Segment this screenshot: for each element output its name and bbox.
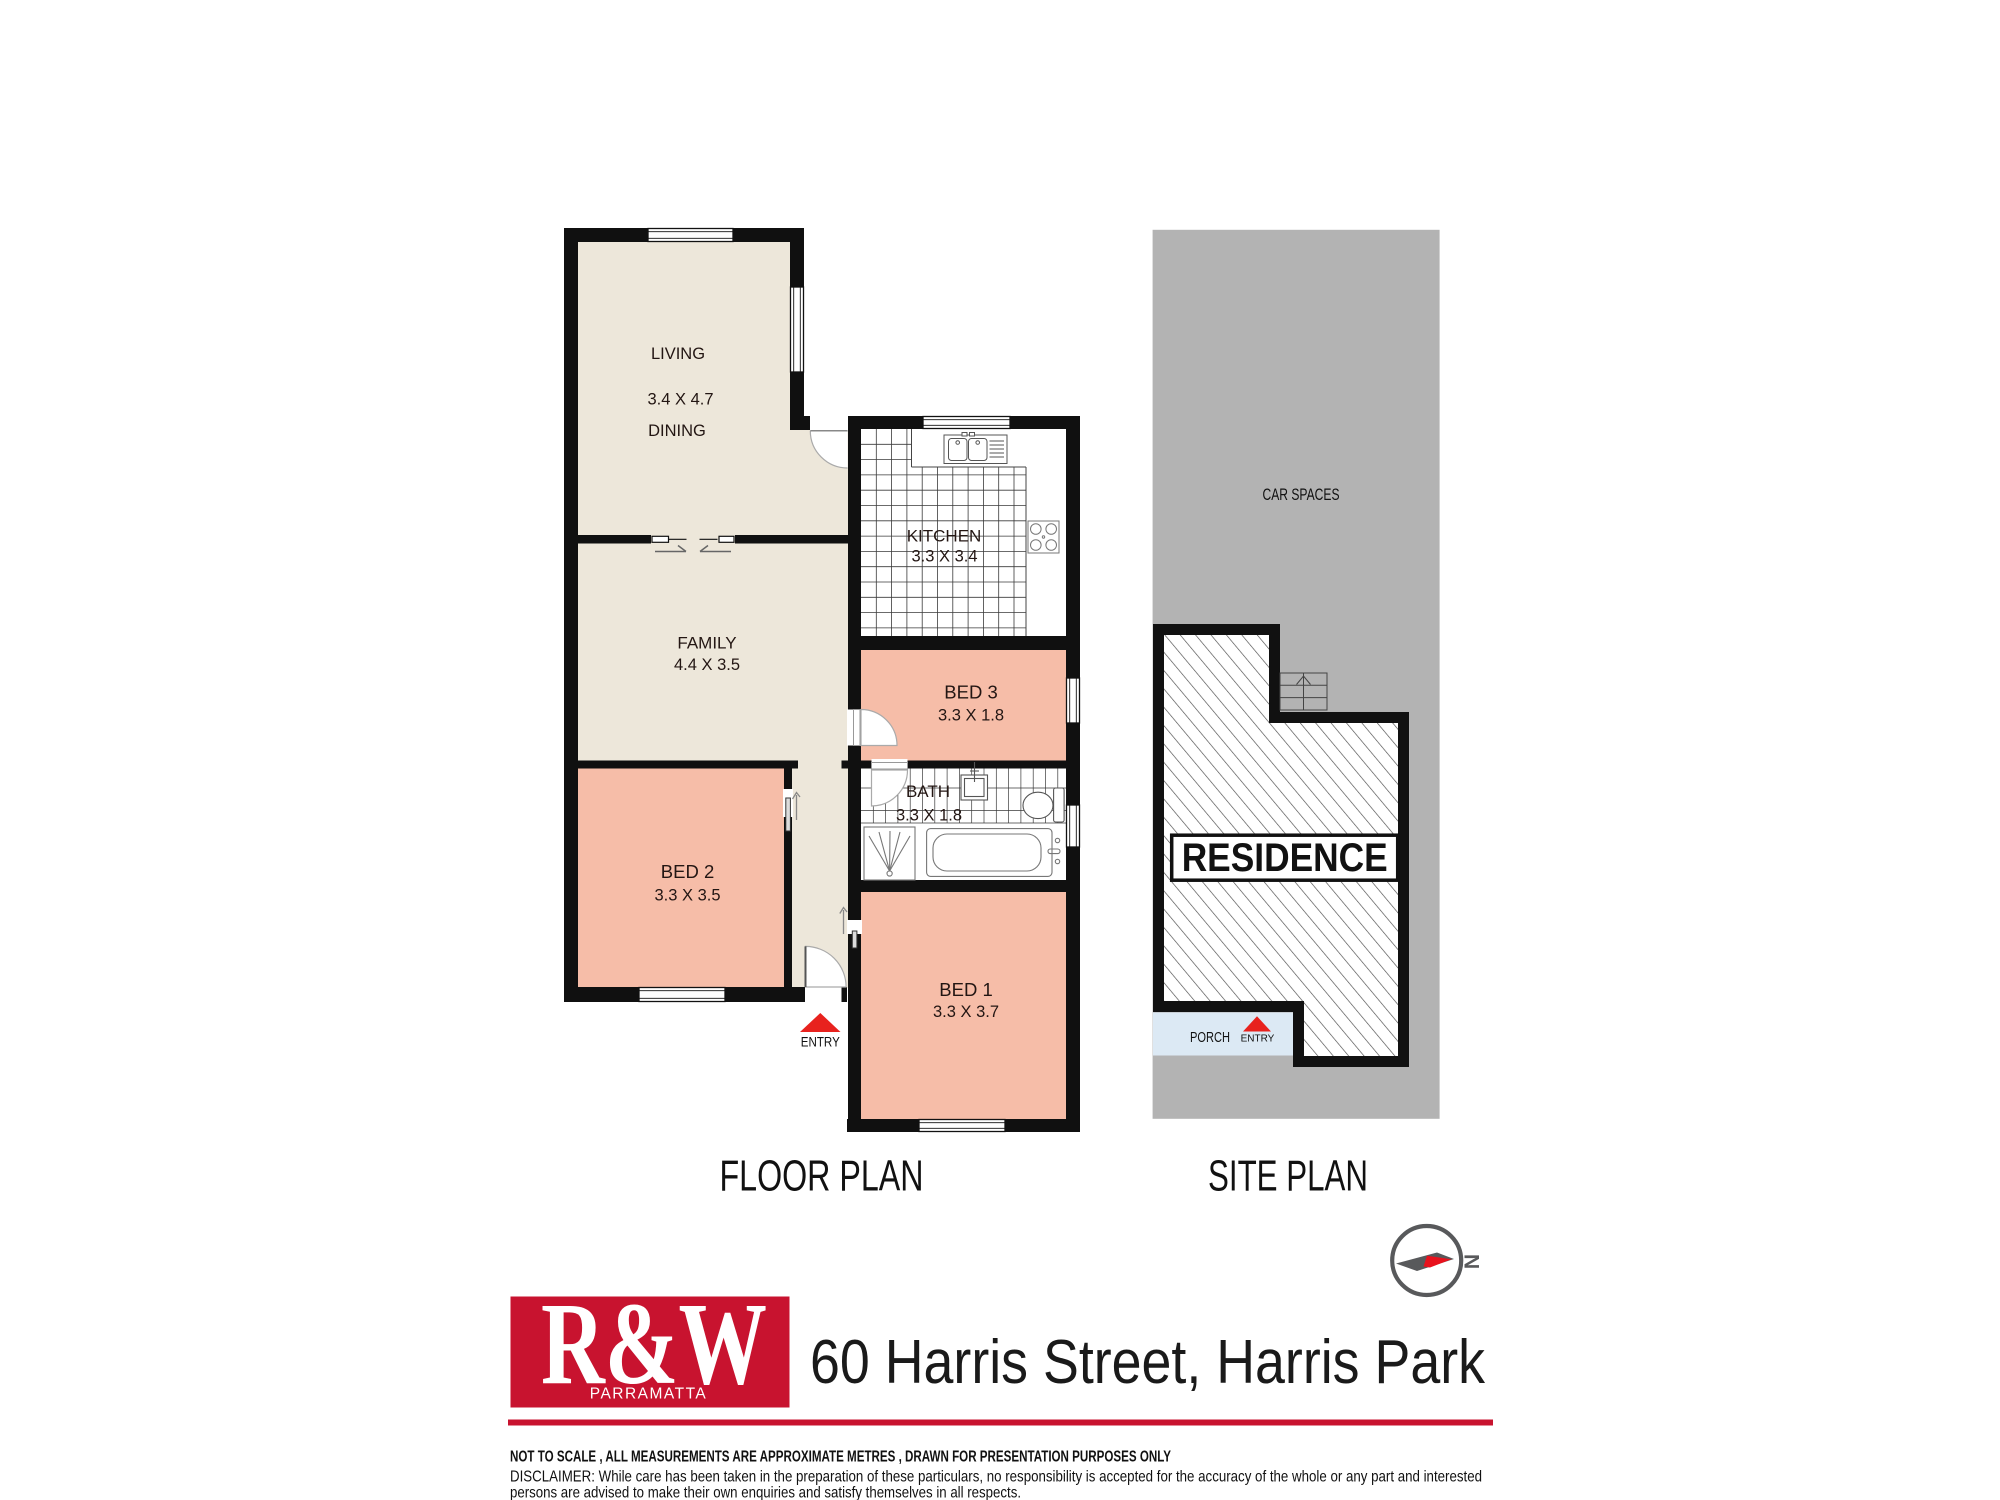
- svg-text:DISCLAIMER: While care has be: DISCLAIMER: While care has been taken in…: [510, 1469, 1482, 1486]
- svg-text:ENTRY: ENTRY: [801, 1034, 841, 1050]
- svg-text:DINING: DINING: [648, 422, 706, 440]
- svg-text:3.4 X 4.7: 3.4 X 4.7: [647, 391, 713, 409]
- svg-text:3.3 X 1.8: 3.3 X 1.8: [896, 807, 962, 825]
- svg-text:BATH: BATH: [906, 782, 950, 801]
- svg-text:persons are advised to make th: persons are advised to make their own en…: [510, 1485, 1021, 1500]
- svg-text:3.3 X 1.8: 3.3 X 1.8: [938, 707, 1004, 725]
- svg-text:KITCHEN: KITCHEN: [907, 527, 982, 546]
- svg-text:SITE PLAN: SITE PLAN: [1208, 1152, 1368, 1201]
- svg-text:PARRAMATTA: PARRAMATTA: [590, 1386, 707, 1403]
- svg-text:LIVING: LIVING: [651, 345, 705, 363]
- svg-text:3.3 X 3.4: 3.3 X 3.4: [911, 548, 977, 566]
- svg-text:FAMILY: FAMILY: [677, 634, 736, 653]
- svg-text:3.3 X 3.7: 3.3 X 3.7: [933, 1003, 999, 1021]
- svg-text:60 Harris Street, Harris Park: 60 Harris Street, Harris Park: [810, 1328, 1486, 1397]
- svg-text:ENTRY: ENTRY: [1241, 1034, 1275, 1045]
- svg-text:RESIDENCE: RESIDENCE: [1182, 836, 1388, 880]
- svg-text:N: N: [1460, 1254, 1483, 1269]
- svg-text:NOT TO SCALE , ALL MEASUREMENT: NOT TO SCALE , ALL MEASUREMENTS ARE APPR…: [510, 1449, 1171, 1466]
- svg-text:4.4 X 3.5: 4.4 X 3.5: [674, 656, 740, 674]
- svg-text:FLOOR PLAN: FLOOR PLAN: [720, 1152, 924, 1201]
- svg-text:BED 2: BED 2: [661, 861, 714, 882]
- svg-text:3.3 X 3.5: 3.3 X 3.5: [654, 887, 720, 905]
- svg-text:CAR SPACES: CAR SPACES: [1263, 486, 1340, 504]
- svg-text:BED 3: BED 3: [944, 682, 997, 703]
- svg-text:BED 1: BED 1: [939, 979, 992, 1000]
- svg-text:PORCH: PORCH: [1190, 1029, 1230, 1046]
